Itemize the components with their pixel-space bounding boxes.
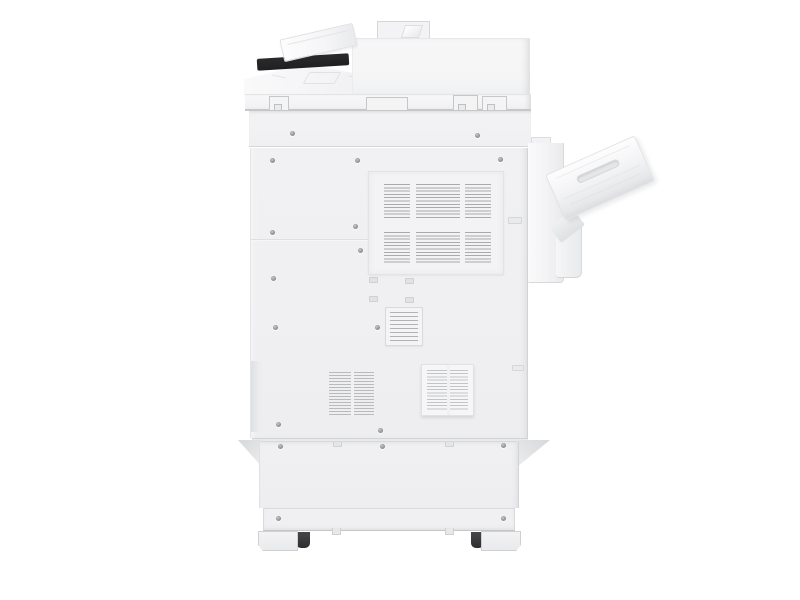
screw <box>271 276 276 281</box>
base-cabinet <box>259 442 519 508</box>
side-latch <box>512 365 524 371</box>
base-tab <box>445 442 454 447</box>
screw <box>380 444 385 449</box>
latch-tab-notch <box>458 104 466 110</box>
kick-plate-tab <box>445 528 454 535</box>
panel-clip <box>369 296 378 302</box>
tray-handhold-slot <box>575 158 620 184</box>
screw <box>270 230 275 235</box>
latch-tab-notch <box>274 104 282 110</box>
screw <box>501 443 506 448</box>
latch-tab <box>453 95 478 110</box>
screw <box>498 157 503 162</box>
screw <box>475 133 480 138</box>
adf-body <box>352 38 530 96</box>
kick-plate <box>263 508 515 531</box>
screw <box>378 428 383 433</box>
foot-right <box>481 531 521 551</box>
printer-product-photo <box>0 0 800 600</box>
screw <box>375 325 380 330</box>
left-vent-grille <box>329 372 374 416</box>
upper-rear-strip <box>249 111 531 147</box>
screw <box>358 248 363 253</box>
framed-vent-grille <box>421 364 474 416</box>
foot-left <box>258 531 298 551</box>
latch-tab <box>269 96 289 110</box>
vent-slats <box>465 184 491 219</box>
handle-recess <box>251 361 264 432</box>
screw <box>273 325 278 330</box>
caster-wheel-left <box>296 532 310 548</box>
vent-slats <box>384 184 410 219</box>
small-vent-grille <box>385 307 423 346</box>
screw <box>276 516 281 521</box>
panel-clip <box>369 277 378 283</box>
side-latch <box>508 217 522 224</box>
vent-slats <box>416 184 460 219</box>
vent-slats <box>390 312 418 341</box>
panel-clip <box>405 297 414 303</box>
vent-gap <box>351 372 354 416</box>
main-vent-grille <box>368 171 504 275</box>
vent-gap <box>447 365 450 415</box>
adf-tray-ridge <box>288 30 348 45</box>
latch-tab-notch <box>487 104 495 110</box>
screw <box>355 158 360 163</box>
stabilizer-wing-right <box>517 440 550 467</box>
screw <box>353 224 358 229</box>
screw <box>501 516 506 521</box>
latch-tab <box>482 96 507 110</box>
vent-slats <box>416 232 460 265</box>
screw <box>278 444 283 449</box>
panel-clip <box>405 278 414 284</box>
adf-hinge-notch <box>401 25 423 38</box>
screw <box>270 158 275 163</box>
screw <box>290 131 295 136</box>
screw <box>276 422 281 427</box>
vent-slats <box>384 232 410 265</box>
kick-plate-tab <box>332 528 341 535</box>
panel-crease <box>251 239 368 241</box>
vent-slats <box>465 232 491 265</box>
latch-tab <box>366 97 408 110</box>
printer <box>0 0 800 600</box>
base-tab <box>333 442 342 447</box>
